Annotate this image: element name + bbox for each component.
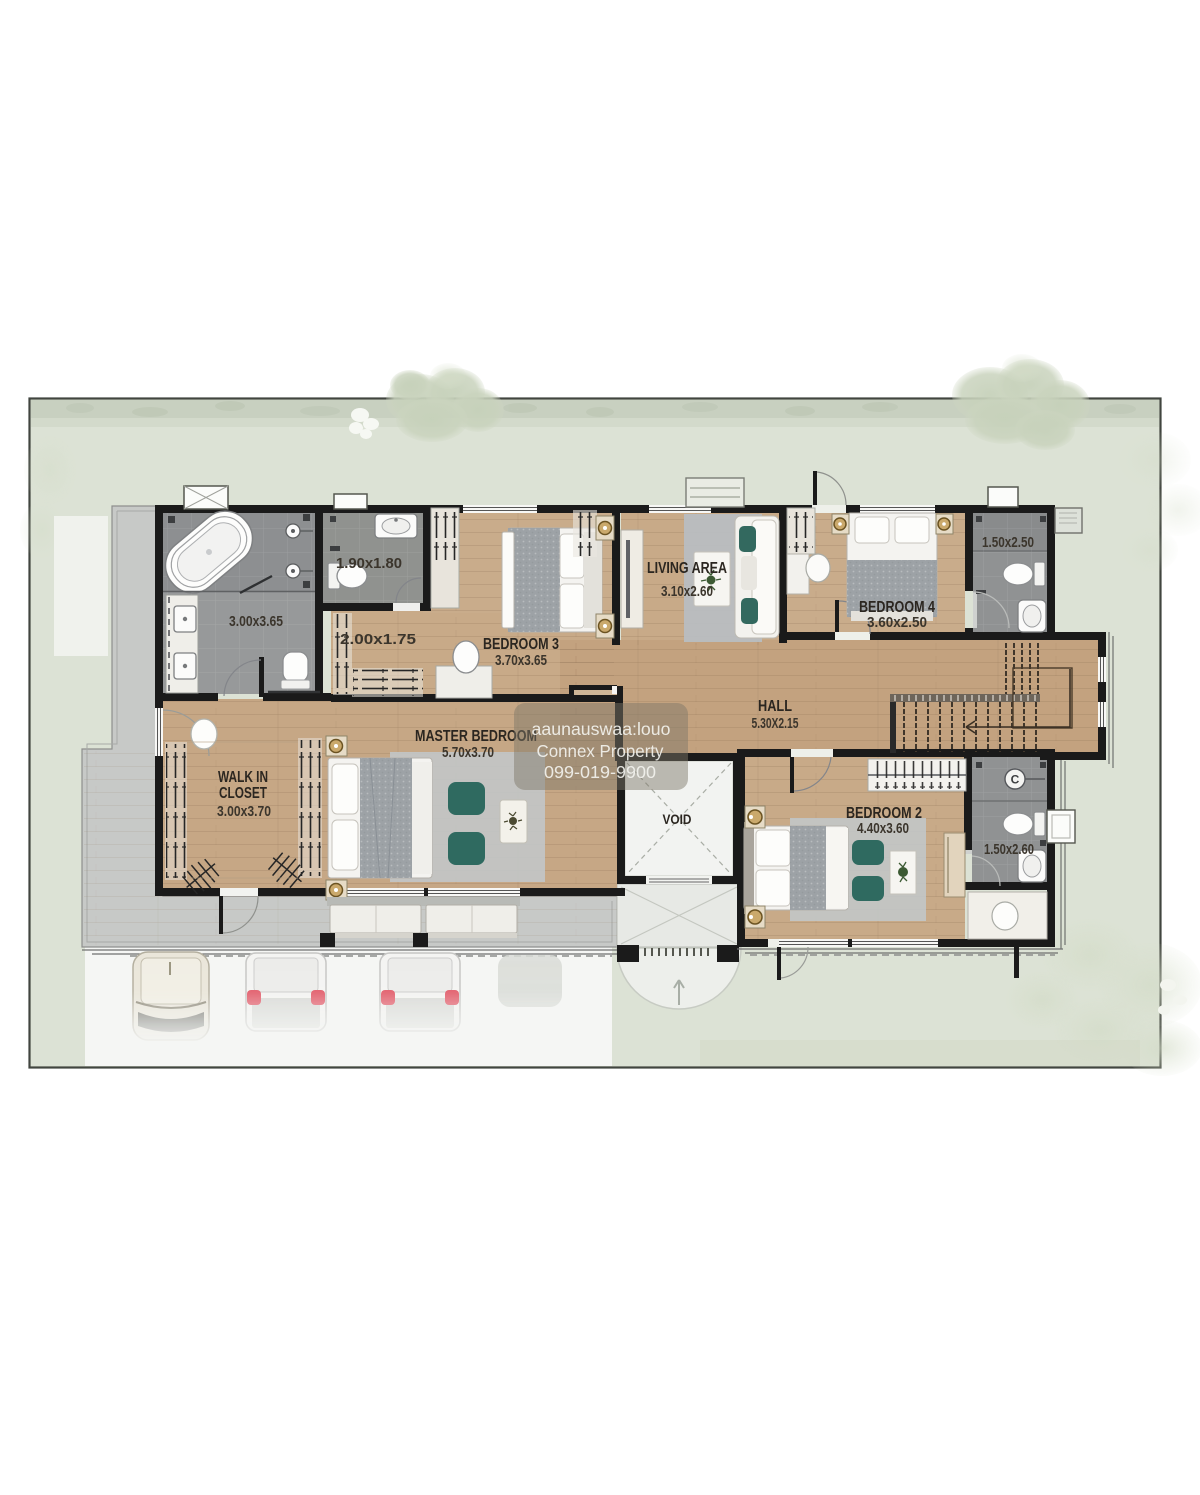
svg-text:1.50x2.50: 1.50x2.50 [982, 534, 1034, 551]
svg-text:WALK IN: WALK IN [218, 769, 268, 786]
svg-text:VOID: VOID [663, 812, 692, 827]
svg-text:3.10x2.60: 3.10x2.60 [661, 583, 713, 600]
svg-text:aaunauswaa:louo: aaunauswaa:louo [532, 719, 671, 739]
svg-text:C: C [1011, 773, 1020, 787]
svg-text:HALL: HALL [758, 698, 792, 715]
svg-text:1.50x2.60: 1.50x2.60 [984, 841, 1034, 858]
svg-text:3.60x2.50: 3.60x2.50 [867, 614, 927, 631]
svg-text:1.90x1.80: 1.90x1.80 [336, 555, 402, 572]
svg-text:5.70x3.70: 5.70x3.70 [442, 744, 494, 761]
svg-text:5.30X2.15: 5.30X2.15 [752, 716, 799, 732]
svg-text:Connex Property: Connex Property [537, 741, 664, 761]
svg-text:2.00x1.75: 2.00x1.75 [340, 631, 416, 648]
svg-text:3.00x3.70: 3.00x3.70 [217, 803, 271, 820]
svg-text:3.00x3.65: 3.00x3.65 [229, 613, 283, 630]
svg-text:4.40x3.60: 4.40x3.60 [857, 820, 909, 837]
svg-text:CLOSET: CLOSET [219, 785, 267, 802]
svg-text:3.70x3.65: 3.70x3.65 [495, 652, 547, 669]
svg-text:099-019-9900: 099-019-9900 [544, 762, 656, 782]
svg-text:BEDROOM 3: BEDROOM 3 [483, 636, 559, 653]
svg-text:LIVING AREA: LIVING AREA [647, 560, 727, 577]
